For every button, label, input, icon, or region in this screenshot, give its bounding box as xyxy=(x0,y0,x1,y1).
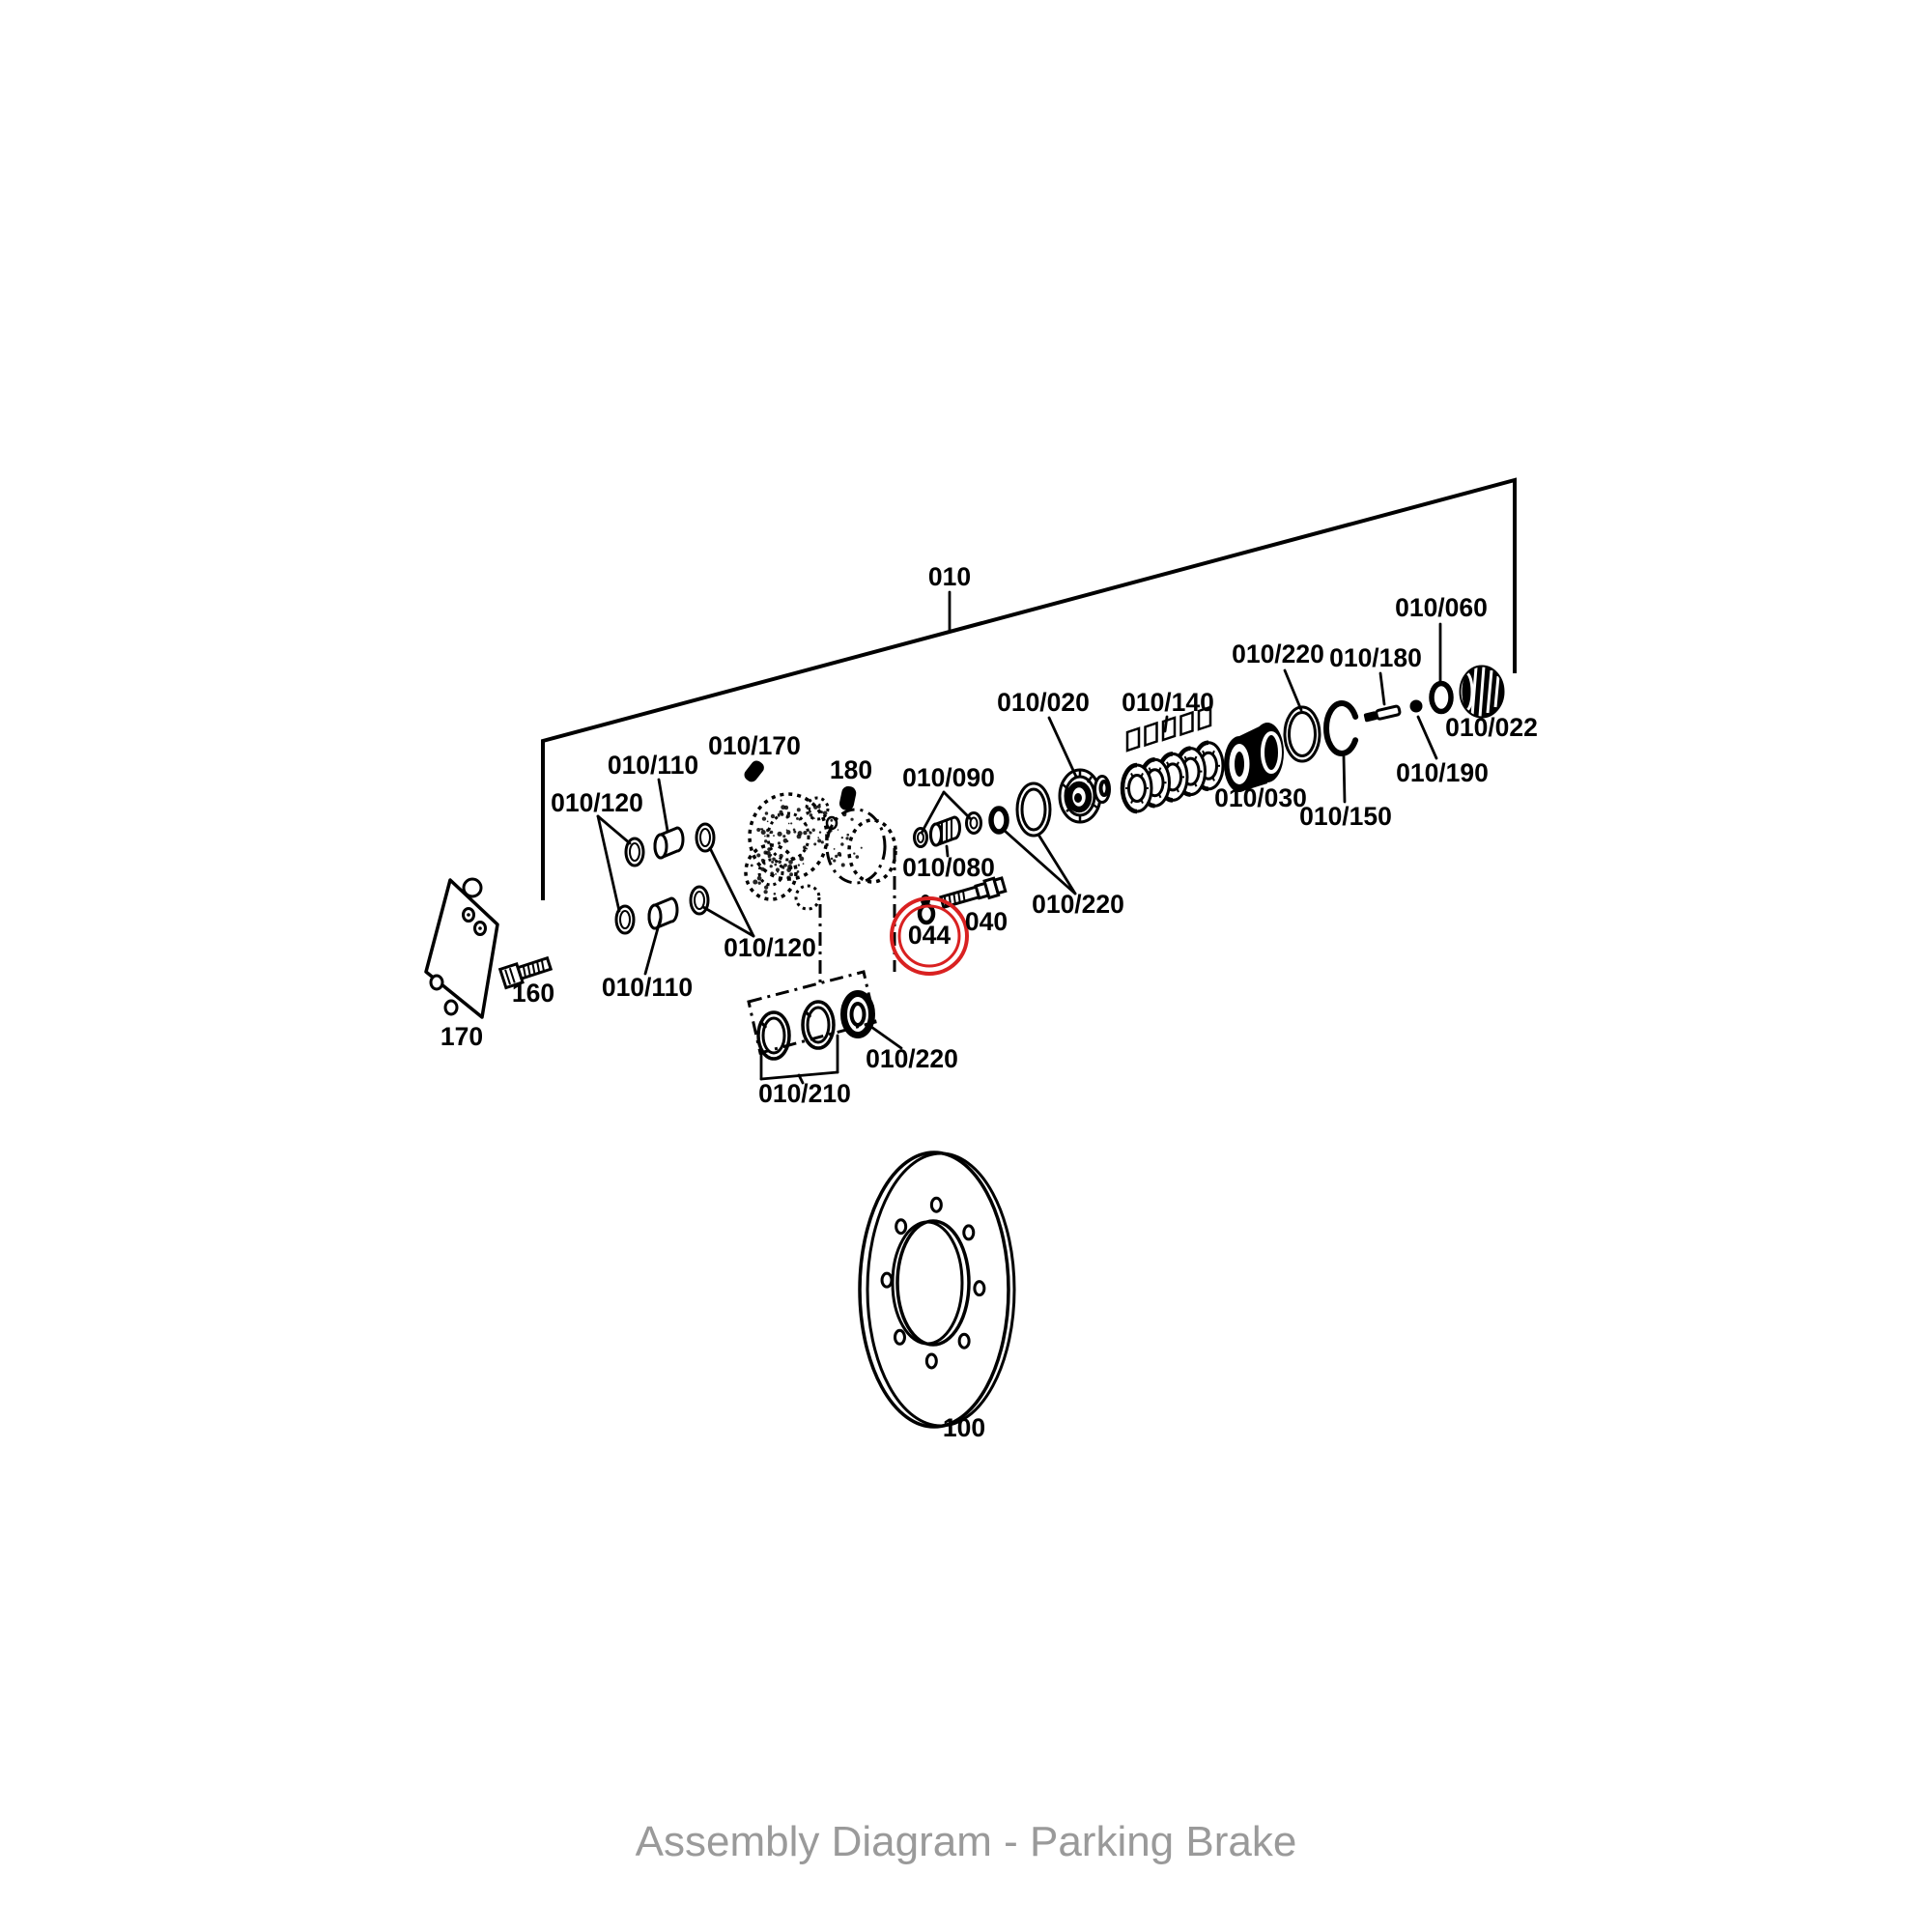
leader-line xyxy=(1344,756,1345,802)
disc-stack-010-140 xyxy=(1122,707,1223,811)
part-label-010: 010 xyxy=(928,562,971,591)
knurled-nut-010-022 xyxy=(1461,667,1504,718)
friction-disc xyxy=(1122,765,1151,811)
o-ring-010-220-right xyxy=(1285,707,1320,761)
part-label-010-022: 010/022 xyxy=(1445,713,1538,742)
leader-line xyxy=(1165,717,1167,731)
part-label-010-220: 010/220 xyxy=(866,1044,958,1073)
part-label-010-210: 010/210 xyxy=(758,1079,851,1108)
snap-ring-010-150 xyxy=(1326,703,1357,753)
pin-010-180 xyxy=(1363,706,1400,723)
part-label-010-110: 010/110 xyxy=(602,973,693,1002)
o-ring-large-mid xyxy=(1017,783,1050,836)
bushing-kit-lower xyxy=(616,887,708,933)
plug-180 xyxy=(838,785,858,812)
seal-010-220-bottom xyxy=(844,994,872,1036)
leader-line xyxy=(944,792,971,819)
part-label-180: 180 xyxy=(830,755,872,784)
part-label-160: 160 xyxy=(512,979,554,1008)
o-ring-010-060 xyxy=(1432,684,1451,712)
part-label-010-140: 010/140 xyxy=(1122,688,1214,717)
leader-line xyxy=(1418,717,1436,758)
part-label-010-170: 010/170 xyxy=(708,731,801,760)
part-label-010-110: 010/110 xyxy=(608,751,698,780)
leader-line xyxy=(1049,718,1076,777)
leader-line xyxy=(1005,831,1075,894)
o-ring-small-mid xyxy=(991,809,1007,832)
part-label-010-150: 010/150 xyxy=(1299,802,1392,831)
part-label-010-090: 010/090 xyxy=(902,763,995,792)
part-label-100: 100 xyxy=(943,1413,985,1442)
piston-010-030 xyxy=(1224,723,1284,792)
part-label-010-180: 010/180 xyxy=(1329,643,1422,672)
diagram-title: Assembly Diagram - Parking Brake xyxy=(0,1818,1932,1866)
hub-010-020 xyxy=(1060,770,1110,822)
part-label-044: 044 xyxy=(908,921,951,950)
plug-010-170 xyxy=(742,758,766,784)
brake-disc-100 xyxy=(860,1152,1014,1427)
part-label-010-030: 010/030 xyxy=(1214,783,1307,812)
part-label-170: 170 xyxy=(440,1022,483,1051)
disc-tab-outline xyxy=(1127,728,1139,751)
bushing-kit-upper xyxy=(626,824,714,866)
part-label-010-020: 010/020 xyxy=(997,688,1090,717)
leader-line xyxy=(1380,673,1384,704)
leader-line xyxy=(659,780,668,831)
leader-line xyxy=(1285,670,1301,710)
assembly-diagram: 010010/060010/220010/180010/022010/19001… xyxy=(0,0,1932,1932)
part-label-010-120: 010/120 xyxy=(551,788,643,817)
part-label-010-060: 010/060 xyxy=(1395,593,1488,622)
disc-tab-outline xyxy=(1146,724,1157,746)
part-label-010-120: 010/120 xyxy=(724,933,816,962)
part-label-040: 040 xyxy=(965,907,1008,936)
part-label-010-190: 010/190 xyxy=(1396,758,1489,787)
ball-010-190 xyxy=(1410,700,1423,713)
part-label-010-220: 010/220 xyxy=(1032,890,1124,919)
bracket-plate-170 xyxy=(426,879,497,1017)
part-label-010-080: 010/080 xyxy=(902,853,995,882)
diagram-stage: 010010/060010/220010/180010/022010/19001… xyxy=(0,0,1932,1932)
bushing-010-080 xyxy=(931,817,960,845)
caliper-body xyxy=(746,794,895,909)
part-label-010-220: 010/220 xyxy=(1232,639,1324,668)
